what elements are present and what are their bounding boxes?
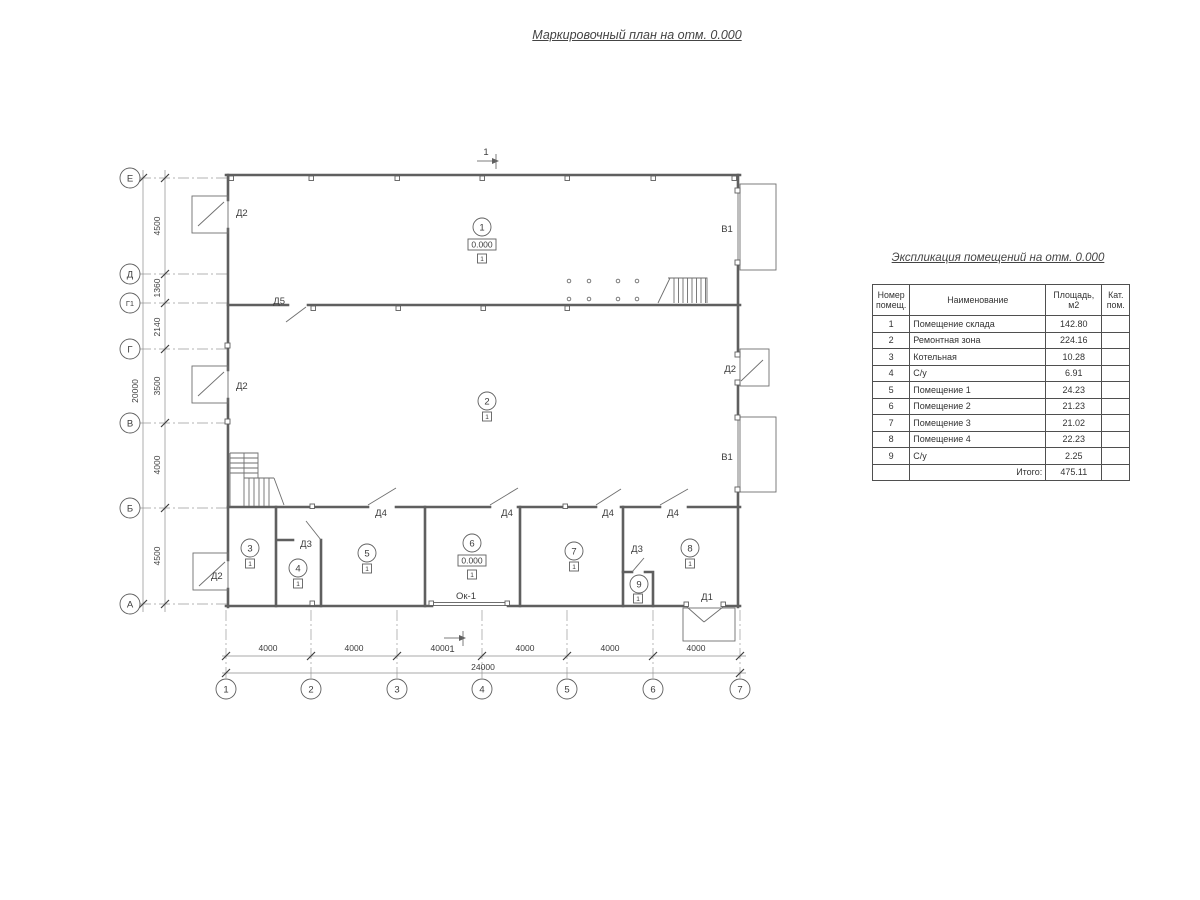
axis-bubbles-cols: 1 2 3 4 5 6 7 bbox=[216, 679, 750, 699]
floor-type-mark: 1 bbox=[636, 596, 640, 603]
dim-left-3: 3500 bbox=[152, 376, 162, 395]
axis-row-1: Д bbox=[127, 270, 134, 281]
door-label-d3: Д3 bbox=[631, 544, 643, 555]
door-label-d2: Д2 bbox=[236, 381, 248, 392]
axis-col-1: 2 bbox=[308, 685, 313, 696]
dim-left-2: 2140 bbox=[152, 317, 162, 336]
floor-type-mark: 1 bbox=[688, 561, 692, 568]
staircase-room1 bbox=[658, 278, 707, 303]
gate-label-v1: В1 bbox=[721, 224, 733, 235]
room-number-6: 6 bbox=[469, 539, 474, 550]
axis-row-5: Б bbox=[127, 504, 133, 515]
schedule-row: 3 Котельная 10.28 bbox=[873, 349, 1130, 366]
axis-col-6: 7 bbox=[737, 685, 742, 696]
door-label-d3: Д3 bbox=[300, 539, 312, 550]
schedule-row: 5 Помещение 1 24.23 bbox=[873, 382, 1130, 399]
schedule-table: Номер помещ. Наименование Площадь, м2 Ка… bbox=[872, 284, 1130, 481]
axis-lines bbox=[140, 178, 740, 679]
room-number-5: 5 bbox=[364, 549, 369, 560]
door-label-d4: Д4 bbox=[602, 508, 614, 519]
axis-col-4: 5 bbox=[564, 685, 569, 696]
schedule-title: Экспликация помещений на отм. 0.000 bbox=[870, 252, 1126, 264]
section-mark-label: 1 bbox=[449, 644, 454, 655]
floor-type-mark: 1 bbox=[248, 561, 252, 568]
axis-row-2: Г1 bbox=[126, 299, 134, 308]
axis-col-0: 1 bbox=[223, 685, 228, 696]
drawing-sheet: Маркировочный план на отм. 0.000 4500 13… bbox=[0, 0, 1200, 900]
axis-col-2: 3 bbox=[394, 685, 399, 696]
room-number-8: 8 bbox=[687, 544, 692, 555]
elevation-mark: 0.000 bbox=[461, 556, 483, 566]
axis-row-6: А bbox=[127, 600, 134, 611]
door-label-d1: Д1 bbox=[701, 592, 713, 603]
dim-left-5: 4500 bbox=[152, 546, 162, 565]
room-number-4: 4 bbox=[295, 564, 300, 575]
schedule-row: 4 С/у 6.91 bbox=[873, 365, 1130, 382]
gate-label-v1: В1 bbox=[721, 452, 733, 463]
staircase-room2 bbox=[230, 453, 284, 506]
schedule-row: 9 С/у 2.25 bbox=[873, 448, 1130, 465]
door-label-d2: Д2 bbox=[211, 571, 223, 582]
dim-bottom-1: 4000 bbox=[345, 643, 364, 653]
door-label-d4: Д4 bbox=[667, 508, 679, 519]
elevation-mark: 0.000 bbox=[471, 240, 493, 250]
room-number-9: 9 bbox=[636, 580, 641, 591]
dim-bottom-total: 24000 bbox=[471, 662, 495, 672]
floor-type-mark: 1 bbox=[365, 566, 369, 573]
entrance-porch bbox=[683, 608, 735, 641]
dim-left-total: 20000 bbox=[130, 379, 140, 403]
floor-type-mark: 1 bbox=[470, 572, 474, 579]
axis-col-5: 6 bbox=[650, 685, 655, 696]
schedule-row: 6 Помещение 2 21.23 bbox=[873, 398, 1130, 415]
axis-row-4: В bbox=[127, 419, 133, 430]
floor-type-mark: 1 bbox=[480, 256, 484, 263]
schedule-row: 1 Помещение склада 142.80 bbox=[873, 316, 1130, 333]
dim-bottom-4: 4000 bbox=[601, 643, 620, 653]
dim-left-4: 4000 bbox=[152, 455, 162, 474]
dim-bottom-2: 4000 bbox=[431, 643, 450, 653]
room-number-1: 1 bbox=[479, 223, 484, 234]
floor-type-mark: 1 bbox=[485, 414, 489, 421]
axis-row-0: Е bbox=[127, 174, 133, 185]
schedule-row: 7 Помещение 3 21.02 bbox=[873, 415, 1130, 432]
room-number-2: 2 bbox=[484, 397, 489, 408]
dim-bottom-3: 4000 bbox=[516, 643, 535, 653]
axis-row-3: Г bbox=[127, 345, 132, 356]
dim-left-1: 1360 bbox=[152, 278, 162, 297]
room-number-7: 7 bbox=[571, 547, 576, 558]
door-label-d4: Д4 bbox=[375, 508, 387, 519]
schedule-row: 8 Помещение 4 22.23 bbox=[873, 431, 1130, 448]
schedule-total-row: Итого: 475.11 bbox=[873, 464, 1130, 481]
dim-left-0: 4500 bbox=[152, 216, 162, 235]
schedule-header-area: Площадь, м2 bbox=[1046, 285, 1102, 316]
door-label-d5: Д5 bbox=[273, 296, 285, 307]
schedule-total-label: Итого: bbox=[910, 464, 1046, 481]
floor-type-mark: 1 bbox=[296, 581, 300, 588]
room-number-3: 3 bbox=[247, 544, 252, 555]
schedule-header-name: Наименование bbox=[910, 285, 1046, 316]
door-label-d2: Д2 bbox=[236, 208, 248, 219]
axis-col-3: 4 bbox=[479, 685, 484, 696]
schedule-header-num: Номер помещ. bbox=[873, 285, 910, 316]
schedule-total-value: 475.11 bbox=[1046, 464, 1102, 481]
column-dots bbox=[567, 279, 639, 301]
schedule-header-cat: Кат. пом. bbox=[1102, 285, 1130, 316]
door-label-d2: Д2 bbox=[724, 364, 736, 375]
schedule-row: 2 Ремонтная зона 224.16 bbox=[873, 332, 1130, 349]
section-mark-label: 1 bbox=[483, 147, 488, 158]
floor-type-mark: 1 bbox=[572, 564, 576, 571]
dim-bottom-0: 4000 bbox=[259, 643, 278, 653]
door-label-d4: Д4 bbox=[501, 508, 513, 519]
section-mark-top: 1 bbox=[477, 147, 499, 169]
dim-bottom-5: 4000 bbox=[687, 643, 706, 653]
window-label-ok1: Ок-1 bbox=[456, 591, 476, 602]
